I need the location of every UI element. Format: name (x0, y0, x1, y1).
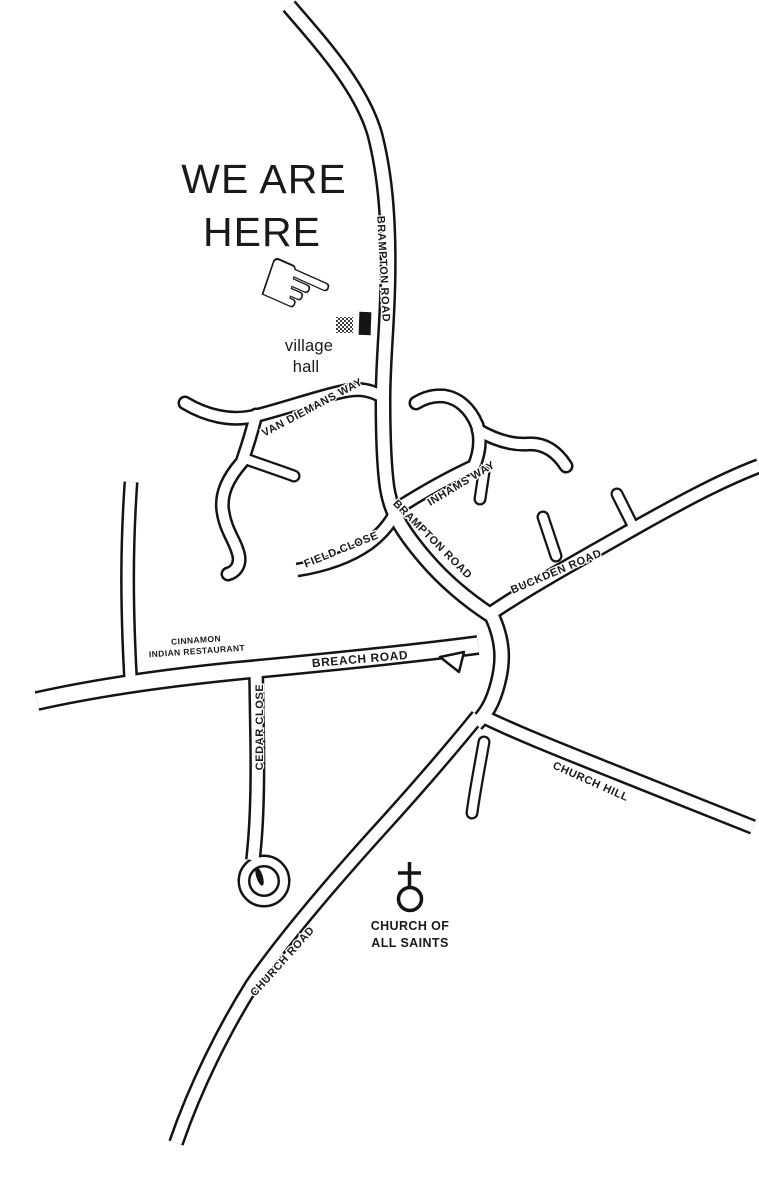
venue-directions-map: ☞ WE ARE HERE village hall BRAMPTON ROAD… (0, 0, 759, 1177)
hall-building-shaded (336, 317, 353, 333)
junction-island (440, 652, 464, 672)
label-restaurant-line2: INDIAN RESTAURANT (149, 643, 246, 660)
map-canvas: ☞ WE ARE HERE village hall BRAMPTON ROAD… (0, 0, 759, 1177)
village-hall-label-line2: hall (293, 358, 320, 376)
village-hall-label-line1: village (285, 337, 333, 355)
road-fills (37, 6, 759, 1143)
church-symbol-icon (398, 862, 422, 911)
title-line1: WE ARE (181, 156, 346, 202)
brampton-road-casing (289, 6, 502, 724)
village-hall-marker (336, 312, 371, 335)
we-are-here-title: WE ARE HERE (181, 156, 346, 255)
title-line2: HERE (203, 209, 321, 255)
label-church-line1: CHURCH OF (371, 919, 450, 933)
road-casings (37, 6, 759, 1143)
label-cedar-close: CEDAR CLOSE (254, 684, 266, 771)
label-church-line2: ALL SAINTS (371, 936, 448, 950)
hall-building-solid (359, 312, 372, 335)
